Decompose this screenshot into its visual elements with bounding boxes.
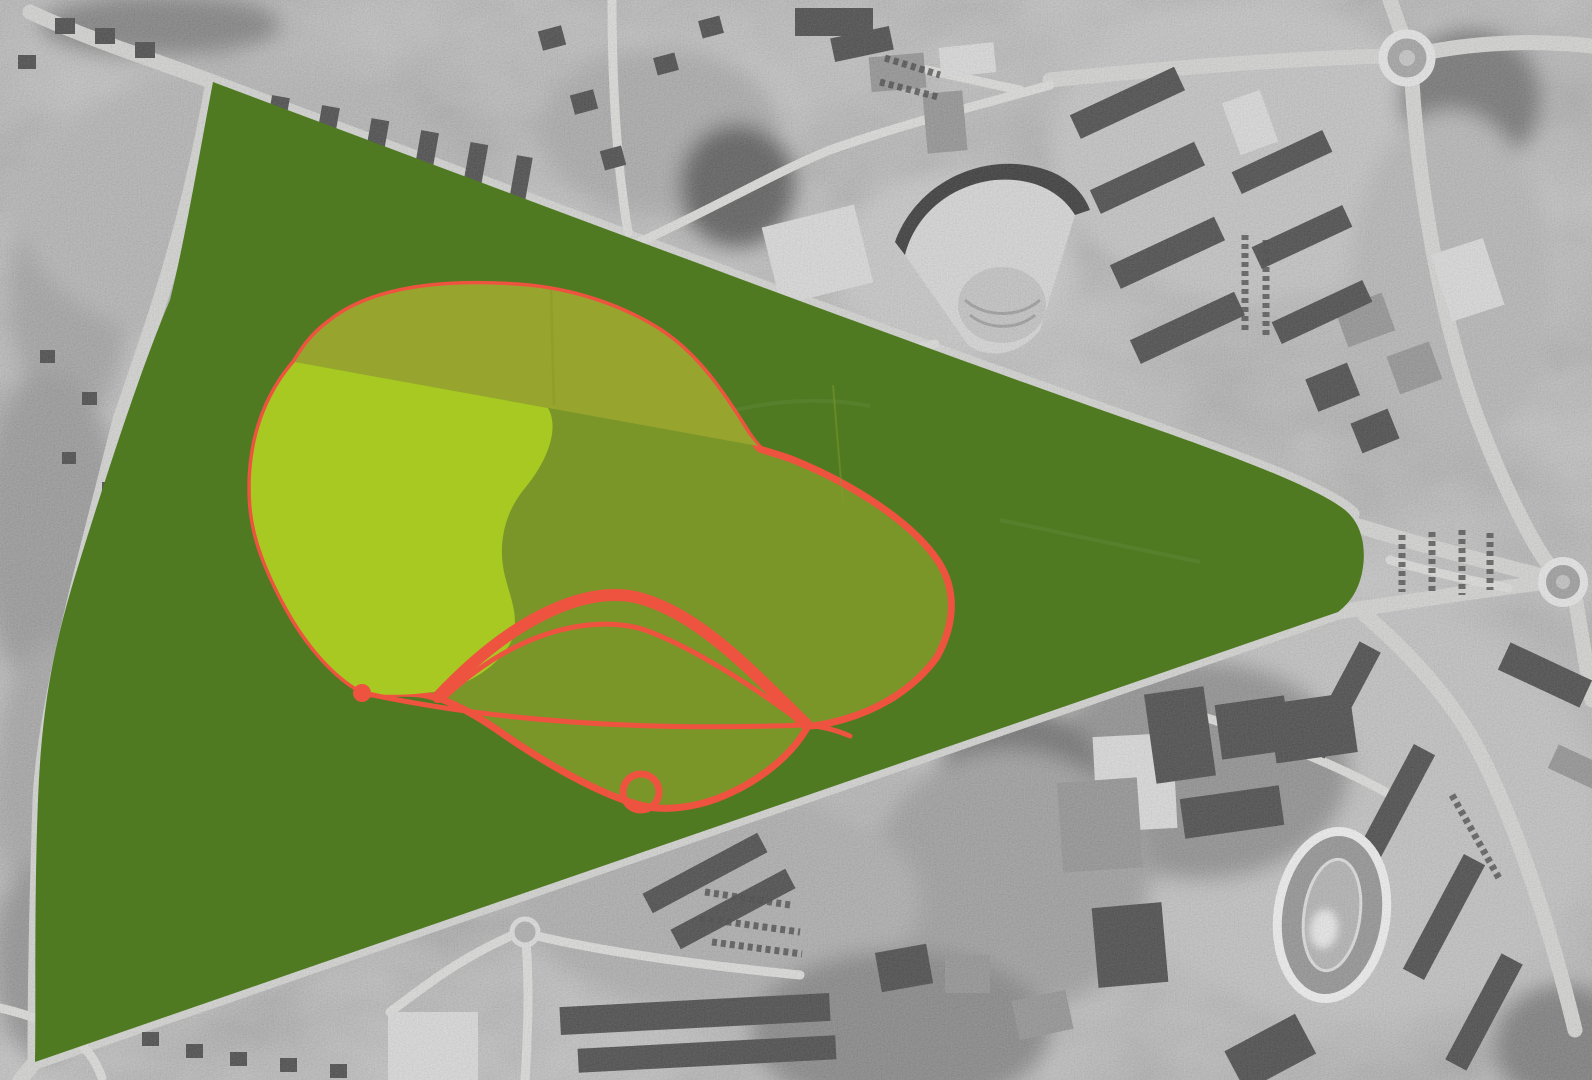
node-marker-dot [353,684,371,702]
aerial-map [0,0,1592,1080]
map-canvas [0,0,1592,1080]
